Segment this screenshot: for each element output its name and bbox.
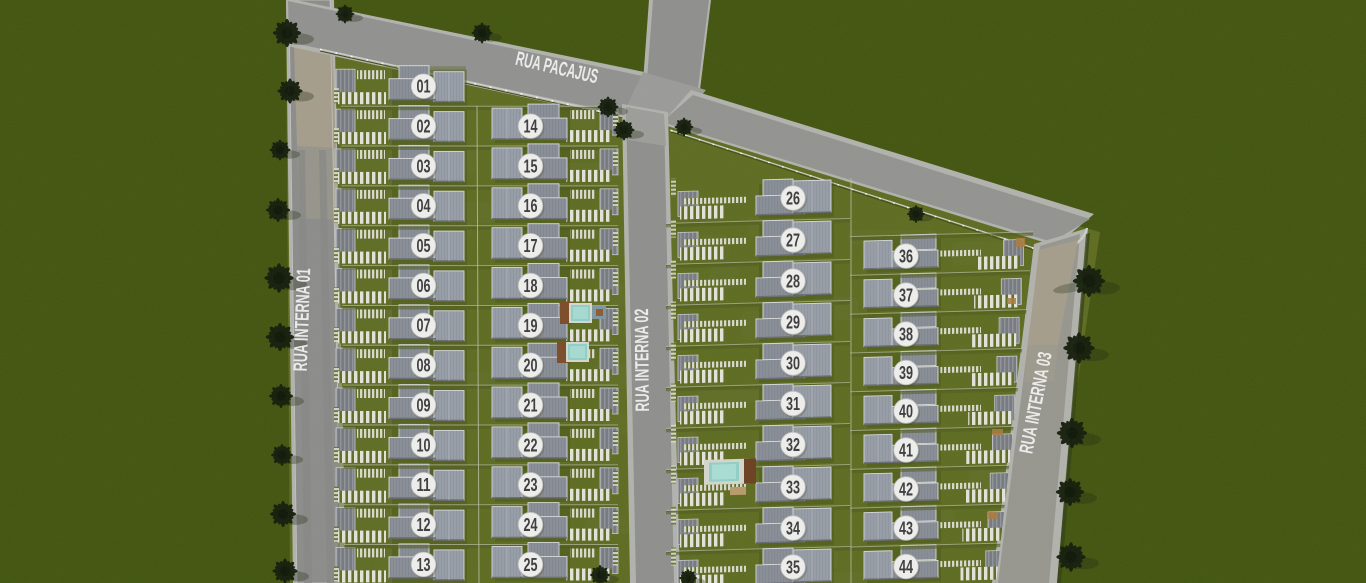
svg-text:37: 37 bbox=[899, 285, 913, 305]
svg-text:39: 39 bbox=[899, 363, 913, 383]
svg-text:10: 10 bbox=[417, 435, 431, 455]
svg-text:14: 14 bbox=[524, 117, 538, 137]
svg-text:04: 04 bbox=[417, 196, 431, 216]
svg-text:13: 13 bbox=[417, 555, 431, 575]
svg-text:25: 25 bbox=[524, 555, 538, 575]
svg-text:RUA INTERNA 01: RUA INTERNA 01 bbox=[290, 268, 316, 372]
svg-text:43: 43 bbox=[899, 518, 913, 538]
svg-text:11: 11 bbox=[417, 475, 431, 495]
svg-text:17: 17 bbox=[524, 236, 538, 256]
svg-text:16: 16 bbox=[524, 196, 538, 216]
svg-text:02: 02 bbox=[417, 116, 431, 136]
svg-text:03: 03 bbox=[417, 156, 431, 176]
svg-text:44: 44 bbox=[899, 557, 913, 577]
svg-text:31: 31 bbox=[786, 394, 800, 414]
svg-text:20: 20 bbox=[524, 356, 538, 376]
svg-text:15: 15 bbox=[524, 156, 538, 176]
svg-text:34: 34 bbox=[786, 518, 800, 538]
svg-text:27: 27 bbox=[786, 230, 800, 250]
svg-text:32: 32 bbox=[786, 435, 800, 455]
svg-text:12: 12 bbox=[417, 515, 431, 535]
svg-text:18: 18 bbox=[524, 276, 538, 296]
svg-text:RUA INTERNA 02: RUA INTERNA 02 bbox=[631, 308, 654, 411]
svg-text:19: 19 bbox=[524, 316, 538, 336]
svg-text:33: 33 bbox=[786, 477, 800, 497]
svg-text:38: 38 bbox=[899, 324, 913, 344]
svg-text:35: 35 bbox=[786, 557, 800, 577]
svg-text:41: 41 bbox=[899, 440, 913, 460]
svg-text:22: 22 bbox=[524, 435, 538, 455]
svg-text:07: 07 bbox=[417, 316, 431, 336]
svg-text:36: 36 bbox=[899, 246, 913, 266]
svg-text:28: 28 bbox=[786, 271, 800, 291]
svg-text:05: 05 bbox=[417, 236, 431, 256]
svg-text:21: 21 bbox=[524, 395, 538, 415]
svg-text:08: 08 bbox=[417, 356, 431, 376]
svg-text:29: 29 bbox=[786, 312, 800, 332]
svg-text:26: 26 bbox=[786, 188, 800, 208]
svg-text:09: 09 bbox=[417, 395, 431, 415]
svg-text:40: 40 bbox=[899, 401, 913, 421]
svg-text:01: 01 bbox=[417, 77, 431, 97]
svg-text:23: 23 bbox=[524, 475, 538, 495]
svg-text:30: 30 bbox=[786, 353, 800, 373]
svg-text:42: 42 bbox=[899, 479, 913, 499]
svg-text:06: 06 bbox=[417, 276, 431, 296]
svg-text:24: 24 bbox=[524, 515, 538, 535]
